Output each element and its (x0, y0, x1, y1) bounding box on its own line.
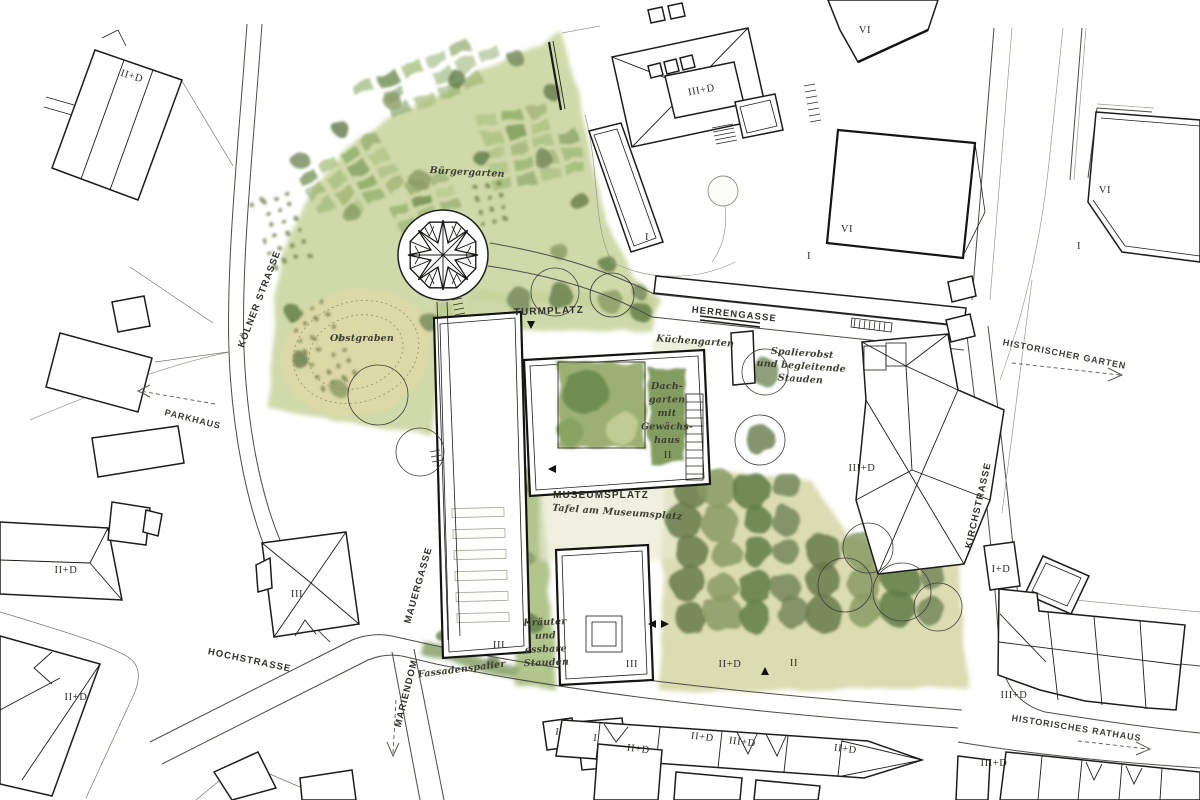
building-herrengasse-north-band (654, 276, 966, 326)
building-kirchstrasse-kiosk-b (946, 314, 975, 342)
building-label-13: VI (859, 25, 871, 36)
building-label-5: III (626, 659, 638, 670)
building-vi-top (828, 0, 938, 62)
building-label-6: II (790, 658, 798, 669)
building-label-7: II+D (719, 659, 742, 670)
parkhaus-arrow (138, 385, 215, 404)
building-label-12: I (807, 251, 811, 262)
building-label-16: III+D (849, 463, 876, 474)
pond (708, 176, 738, 206)
pointer-label-historisches-rathaus: HISTORISCHES RATHAUS (1011, 713, 1142, 743)
building-topcenter-iiid (612, 3, 821, 147)
stairs-road-edge (804, 84, 821, 122)
building-topleft-iid (44, 30, 182, 200)
building-label-11: VI (841, 224, 853, 235)
building-museum-west-wing (434, 312, 530, 658)
building-label-10: I (645, 232, 649, 243)
building-bottomleft-iid (0, 636, 100, 796)
building-parkhaus-blocks (46, 296, 184, 477)
building-label-4: III (493, 640, 505, 651)
street-label-herrengasse: HERRENGASSE (691, 305, 777, 325)
street-label-hochstrasse: HOCHSTRASSE (207, 646, 292, 674)
building-label-15: I (1077, 241, 1081, 252)
street-label-mariendom: MARIENDOM (393, 658, 420, 728)
building-iii-hochstrasse (256, 532, 359, 637)
building-label-8: II (664, 450, 672, 461)
buildings-hochstrasse-south-left (214, 752, 356, 800)
buildings-bottom-row (543, 718, 922, 800)
tower-star (408, 220, 478, 290)
building-museum-southeast (556, 545, 653, 685)
street-label-mauergasse: MAUERGASSE (402, 546, 434, 625)
building-vi-hall (827, 130, 985, 258)
site-plan-page: BürgergartenObstgrabenKüchengartenSpalie… (0, 0, 1200, 800)
building-historic-iiid (856, 334, 1004, 574)
building-label-1: II+D (55, 565, 78, 576)
building-kuechengarten-shed (731, 331, 755, 385)
building-label-3: II+D (65, 692, 88, 703)
garden-label-obstgraben: Obstgraben (330, 333, 394, 344)
building-label-14: VI (1099, 185, 1111, 196)
site-plan-canvas: BürgergartenObstgrabenKüchengartenSpalie… (0, 0, 1200, 800)
building-left-iid (0, 502, 162, 600)
historisches-rathaus-arrow (1078, 741, 1150, 755)
building-label-19: III+D (981, 758, 1008, 769)
place-label-museumsplatz: MUSEUMSPLATZ (553, 490, 649, 501)
building-label-17: I+D (992, 564, 1011, 575)
building-label-2: III (291, 589, 303, 600)
building-label-18: III+D (1001, 690, 1028, 701)
